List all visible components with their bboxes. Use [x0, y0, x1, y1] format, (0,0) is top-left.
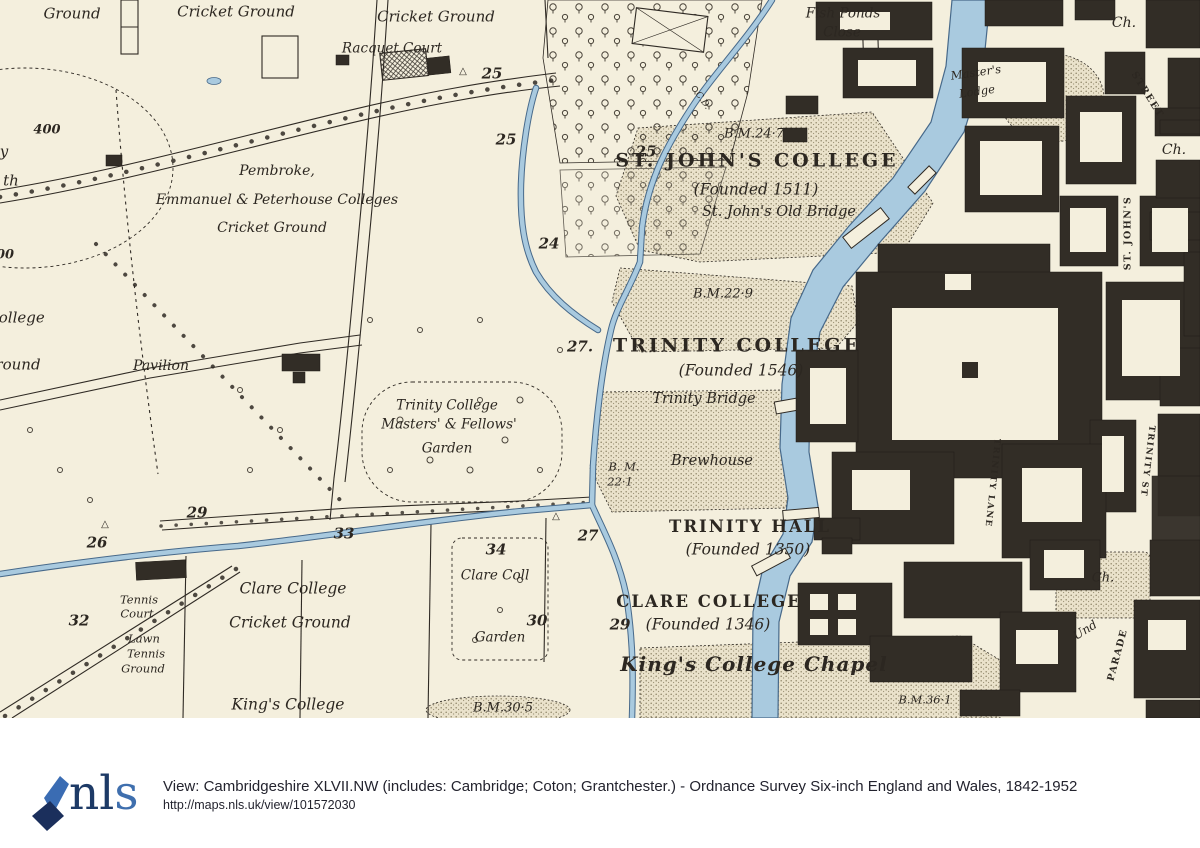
- map-label: Cricket Ground: [229, 615, 351, 631]
- map-label: Pavilion: [133, 359, 189, 373]
- map-label: Tennis: [120, 594, 158, 606]
- map-label: B.M.36·1: [898, 694, 951, 706]
- map-label: B. M.: [608, 461, 639, 473]
- map-labels: GroundCricket GroundCricket GroundRacque…: [0, 0, 1200, 718]
- map-label: 34: [486, 543, 507, 558]
- map-label: C.D.: [693, 91, 711, 112]
- footer: nls View: Cambridgeshire XLVII.NW (inclu…: [0, 718, 1200, 848]
- map-label: Ch.: [1112, 16, 1136, 30]
- map-label: 32: [69, 614, 90, 629]
- map-label: 26: [87, 536, 108, 551]
- map-label: 29: [187, 506, 208, 521]
- map-credit-title: View: Cambridgeshire XLVII.NW (includes:…: [163, 778, 1200, 795]
- map-label: Trinity Bridge: [652, 392, 755, 407]
- map-label: TRINITY LANE: [983, 438, 1001, 528]
- logo-diamond-dark: [32, 801, 64, 831]
- map-label: 25: [496, 133, 517, 148]
- map-label: B.M.24·7: [724, 128, 784, 141]
- map-label: Ground: [0, 358, 41, 373]
- map-label: King's College: [232, 697, 345, 713]
- map-label: y: [0, 145, 8, 160]
- map-label: (Founded 1350): [686, 542, 811, 558]
- map-label: ST. JOHN'S: [1123, 196, 1133, 271]
- map-label: Masters' & Fellows': [381, 418, 516, 432]
- nls-logo-text: nls: [69, 770, 138, 817]
- map-label: 00: [0, 249, 14, 262]
- map-label: 22·1: [607, 476, 633, 488]
- map-credit: View: Cambridgeshire XLVII.NW (includes:…: [163, 778, 1200, 812]
- nls-map-viewer-screenshot: GroundCricket GroundCricket GroundRacque…: [0, 0, 1200, 848]
- map-label: Ch.: [1162, 143, 1186, 157]
- map-label: Pembroke,: [239, 164, 315, 178]
- map-label: △: [552, 512, 560, 522]
- map-label: Ch.: [1092, 572, 1114, 585]
- map-label: (Founded 1546): [679, 363, 804, 379]
- map-label: Trinity College: [396, 399, 498, 413]
- map-label: th: [3, 174, 19, 189]
- map-label: ST. JOHN'S COLLEGE: [615, 152, 898, 171]
- map-label: Emmanuel & Peterhouse Colleges: [156, 193, 398, 207]
- map-label: TRINITY ST: [1138, 425, 1155, 497]
- map-label: 30: [527, 614, 548, 629]
- map-label: Master's: [950, 64, 1002, 82]
- map-label: PARADE: [1106, 628, 1129, 682]
- map-label: 24: [539, 237, 560, 252]
- map-label: Garden: [422, 442, 473, 456]
- map-label: College: [0, 311, 45, 326]
- map-label: Clare College: [240, 581, 347, 597]
- map-label: △: [101, 520, 109, 530]
- map-label: Garden: [475, 631, 526, 645]
- map-label: Lodge: [958, 84, 995, 100]
- map-label: Cricket Ground: [377, 10, 495, 25]
- map-label: Ground: [121, 663, 165, 675]
- map-label: Brewhouse: [671, 454, 753, 469]
- map-label: Ground: [43, 7, 100, 22]
- map-label: Close: [823, 26, 861, 40]
- map-label: 33: [334, 527, 355, 542]
- map-label: Court: [120, 608, 153, 620]
- map-label: B.M.30·5: [473, 702, 533, 715]
- nls-logo-text-s: s: [114, 766, 138, 821]
- map-label: CLARE COLLEGE: [616, 594, 802, 611]
- map-label: Cricket Ground: [177, 5, 295, 20]
- map-label: Racquet Court: [342, 42, 442, 56]
- map-label: 400: [33, 124, 60, 137]
- map-label: △: [459, 67, 467, 77]
- map-label: 27: [578, 529, 599, 544]
- map-label: TRINITY COLLEGE: [613, 337, 861, 356]
- map-canvas[interactable]: GroundCricket GroundCricket GroundRacque…: [0, 0, 1200, 718]
- map-label: St. John's Old Bridge: [702, 205, 856, 220]
- map-label: Tennis: [127, 648, 165, 660]
- map-label: Fish Ponds: [806, 7, 881, 21]
- map-label: 27.: [567, 340, 593, 355]
- map-label: 29: [610, 618, 631, 633]
- map-label: (Founded 1511): [694, 182, 819, 198]
- nls-logo-text-nl: nl: [69, 766, 114, 821]
- map-label: Lawn: [128, 633, 160, 645]
- map-label: TRINITY HALL: [669, 519, 831, 536]
- map-label: Und: [1071, 618, 1099, 642]
- nls-logo: nls: [30, 768, 170, 843]
- map-label: 25: [482, 67, 503, 82]
- map-label: King's College Chapel: [620, 654, 887, 674]
- map-label: B.M.22·9: [693, 288, 753, 301]
- map-label: STREET: [1129, 70, 1165, 119]
- map-label: Clare Coll: [461, 569, 530, 583]
- map-label: (Founded 1346): [646, 617, 771, 633]
- map-credit-url: http://maps.nls.uk/view/101572030: [163, 798, 1200, 812]
- map-label: Cricket Ground: [217, 221, 327, 235]
